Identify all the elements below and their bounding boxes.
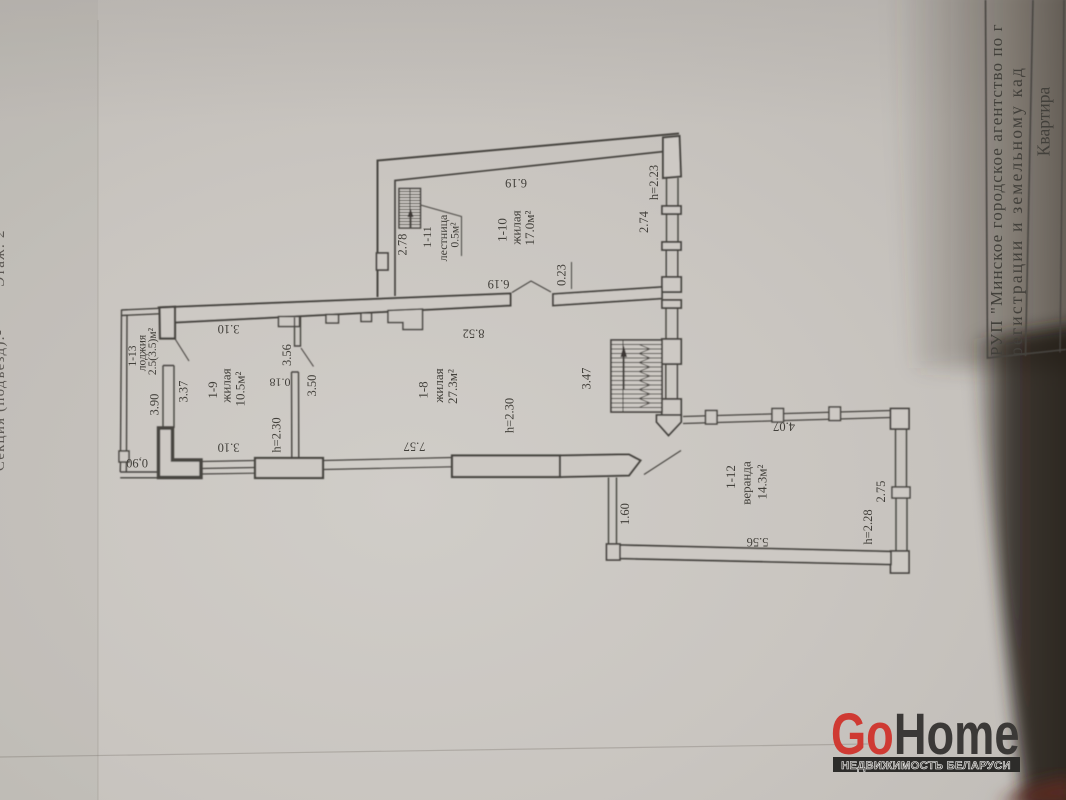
svg-text:h=2.28: h=2.28 [861,509,875,544]
svg-text:Этаж: 2: Этаж: 2 [0,229,8,286]
svg-text:Секция (подъезд):-: Секция (подъезд):- [0,329,8,471]
svg-text:6.19: 6.19 [505,176,527,190]
svg-text:0.5м²: 0.5м² [450,222,462,248]
svg-text:веранда: веранда [739,461,754,505]
svg-text:17.0м²: 17.0м² [522,210,537,245]
svg-text:3.37: 3.37 [177,381,191,403]
svg-text:РУП "Минское городское агентст: РУП "Минское городское агентство по г [987,23,1006,356]
svg-text:0,90: 0,90 [126,456,148,470]
svg-text:0.23: 0.23 [555,264,569,286]
svg-text:жилая: жилая [219,368,234,403]
svg-text:h=2.23: h=2.23 [647,165,661,200]
svg-text:8.52: 8.52 [463,327,485,341]
svg-text:3.50: 3.50 [305,375,319,397]
svg-text:10.5м²: 10.5м² [233,371,248,406]
svg-text:h=2.30: h=2.30 [503,398,517,433]
svg-text:жилая: жилая [431,368,446,403]
svg-text:3.10: 3.10 [218,441,240,455]
svg-text:3.10: 3.10 [218,322,240,336]
svg-text:h=2.30: h=2.30 [270,417,284,452]
svg-text:2.78: 2.78 [396,234,410,256]
svg-text:1.60: 1.60 [618,503,632,525]
svg-text:14.3м²: 14.3м² [755,464,770,499]
svg-text:НЕДВИЖИМОСТЬ БЕЛАРУСИ: НЕДВИЖИМОСТЬ БЕЛАРУСИ [841,760,1011,772]
svg-text:6.19: 6.19 [488,277,510,291]
svg-text:регистрации и земельному кад: регистрации и земельному кад [1006,66,1026,356]
svg-text:2.74: 2.74 [637,210,651,233]
svg-text:2.75: 2.75 [874,481,888,503]
svg-text:1-8: 1-8 [416,381,431,398]
svg-text:1-10: 1-10 [495,218,510,242]
svg-text:1-12: 1-12 [723,465,738,489]
svg-text:4.07: 4.07 [773,420,795,434]
svg-text:Квартира: Квартира [1034,87,1054,157]
svg-text:лестница: лестница [436,214,450,261]
svg-text:1-11: 1-11 [420,226,434,248]
svg-text:3.56: 3.56 [280,344,294,366]
svg-text:3.47: 3.47 [580,368,594,390]
svg-text:0.18: 0.18 [270,376,291,390]
svg-text:27.3м²: 27.3м² [445,369,460,404]
svg-text:2.5(3.5)м²: 2.5(3.5)м² [147,327,159,375]
svg-text:7.57: 7.57 [404,440,426,454]
svg-text:3.90: 3.90 [148,394,162,416]
svg-text:5.56: 5.56 [747,535,769,549]
